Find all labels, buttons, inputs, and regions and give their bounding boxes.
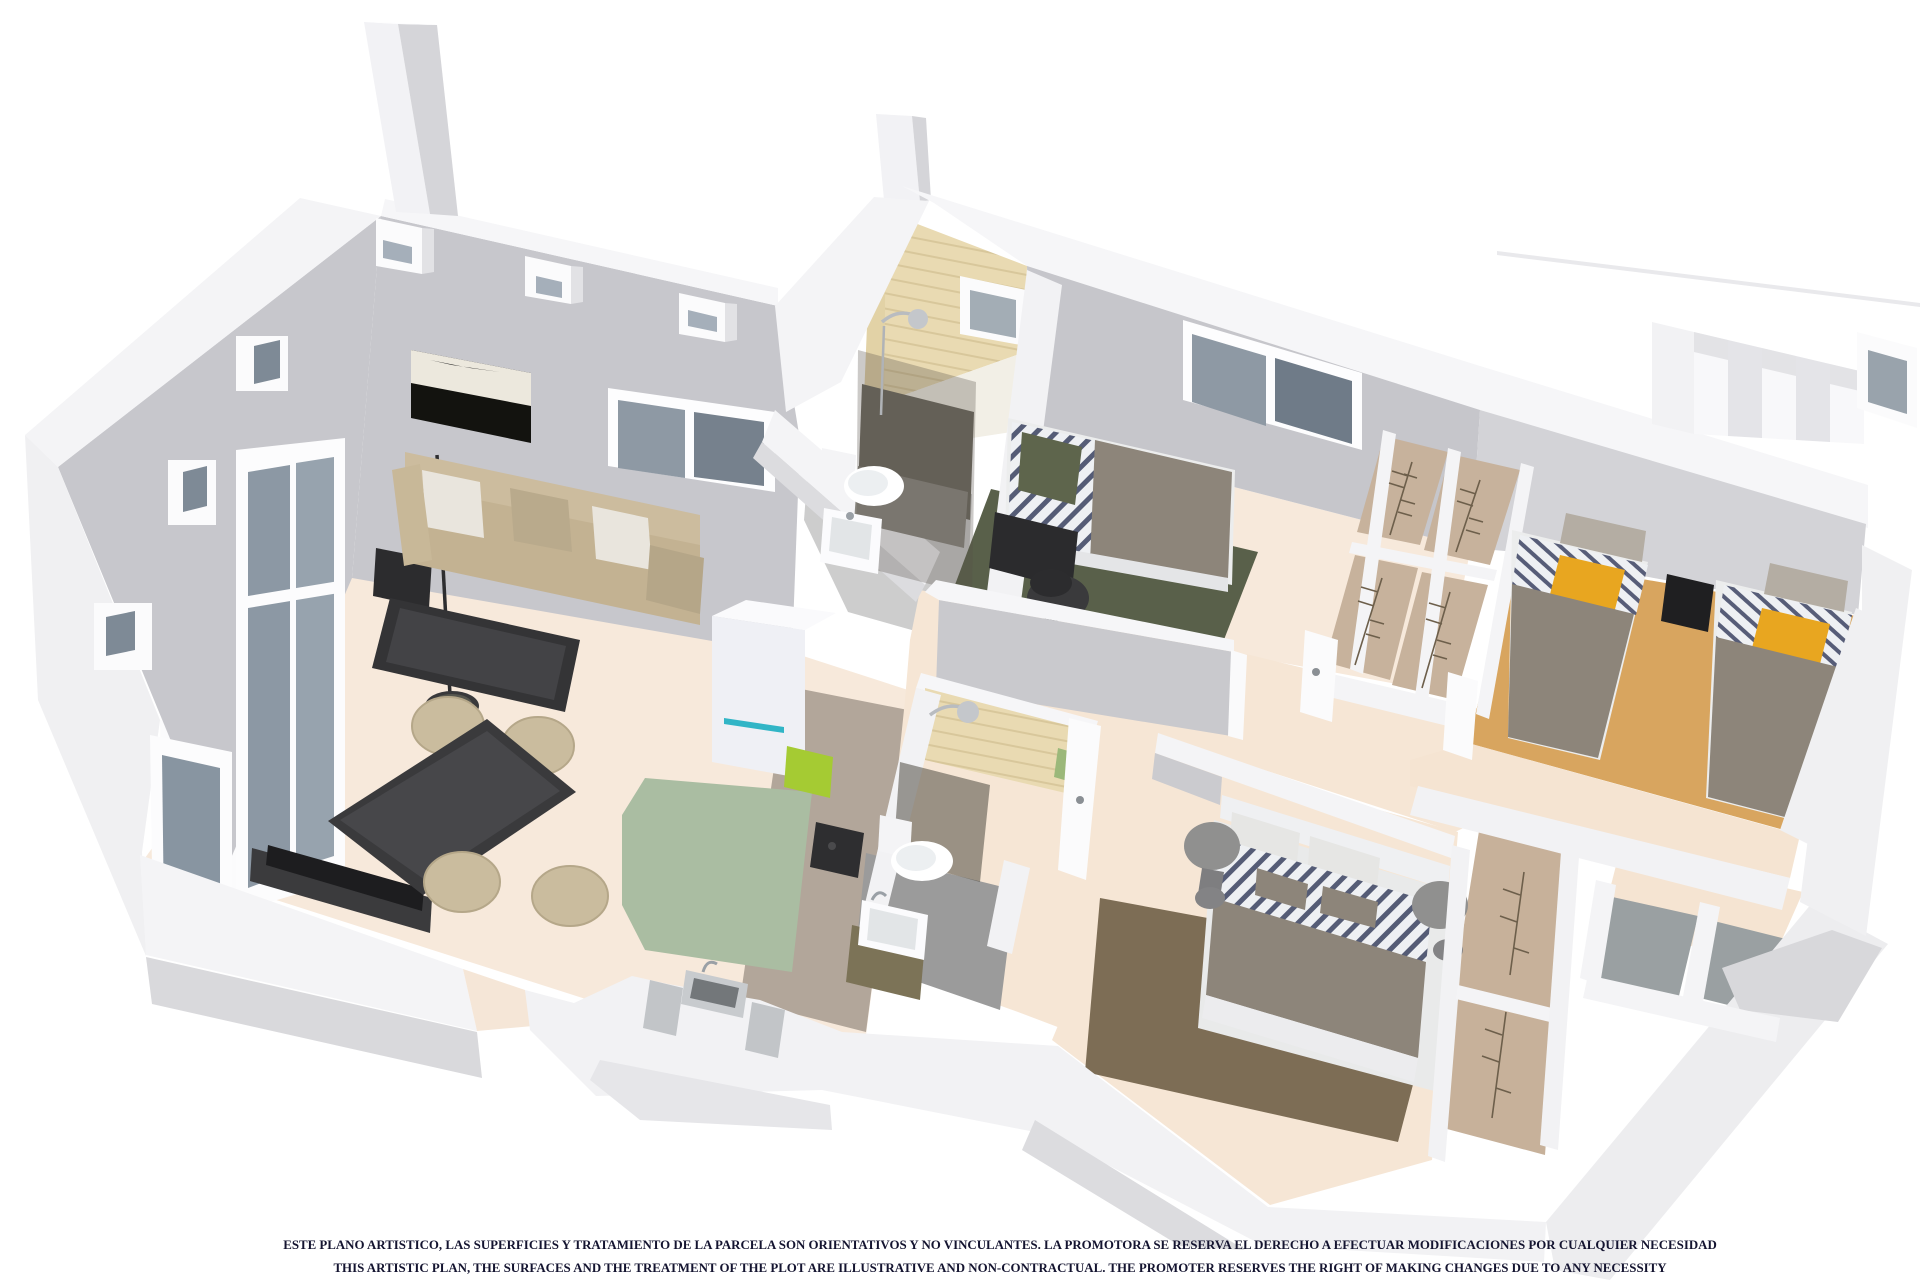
svg-text:ESTE PLANO ARTISTICO, LAS SUPE: ESTE PLANO ARTISTICO, LAS SUPERFICIES Y … [283, 1238, 1717, 1252]
svg-text:THIS ARTISTIC PLAN, THE SURFAC: THIS ARTISTIC PLAN, THE SURFACES AND THE… [333, 1261, 1667, 1275]
